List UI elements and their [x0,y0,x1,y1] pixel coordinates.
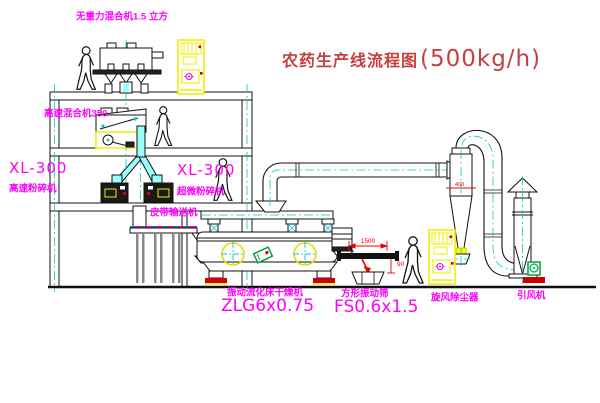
exhaust-duct [256,161,460,212]
label-dryer-model: ZLG6x0.75 [221,298,314,315]
label-cyclone: 旋风除尘器 [431,294,479,304]
control-cabinet-2 [429,230,455,284]
title-text: 农药生产线流程图 [282,47,418,71]
label-left-mill-name: 高速粉碎机 [9,185,57,195]
operator-4 [403,237,423,283]
fluid-bed-dryer [197,211,353,284]
gravity-free-mixer [93,43,163,93]
label-mid-mill-name: 超微粉碎机 [177,188,225,198]
discharge-duct [133,206,146,228]
label-mid-mill-model: XL-300 [177,163,235,178]
label-high-speed-mixer: 高速混合机350 [44,110,107,120]
process-flow-diagram: 1500 90 400 [0,0,600,403]
cyclone-dia-dim: 400 [455,182,464,188]
xl300-mills [101,175,173,202]
label-left-mill-model: XL-300 [9,161,67,176]
label-belt-conveyor: 皮带输送机 [150,209,198,219]
label-fan: 引风机 [517,292,546,302]
screen-drop-dim: 90 [397,261,405,268]
label-gravity-free-mixer: 无重力混合机1.5 立方 [76,13,168,23]
diagram-title: 农药生产线流程图 (500kg/h) [282,47,541,71]
operator-1 [77,47,95,90]
control-cabinet-1 [178,40,204,94]
label-screen-model: FS0.6x1.5 [334,299,418,316]
title-capacity: (500kg/h) [420,49,541,71]
screen-length-dim: 1500 [361,238,376,245]
operator-2 [155,107,172,146]
